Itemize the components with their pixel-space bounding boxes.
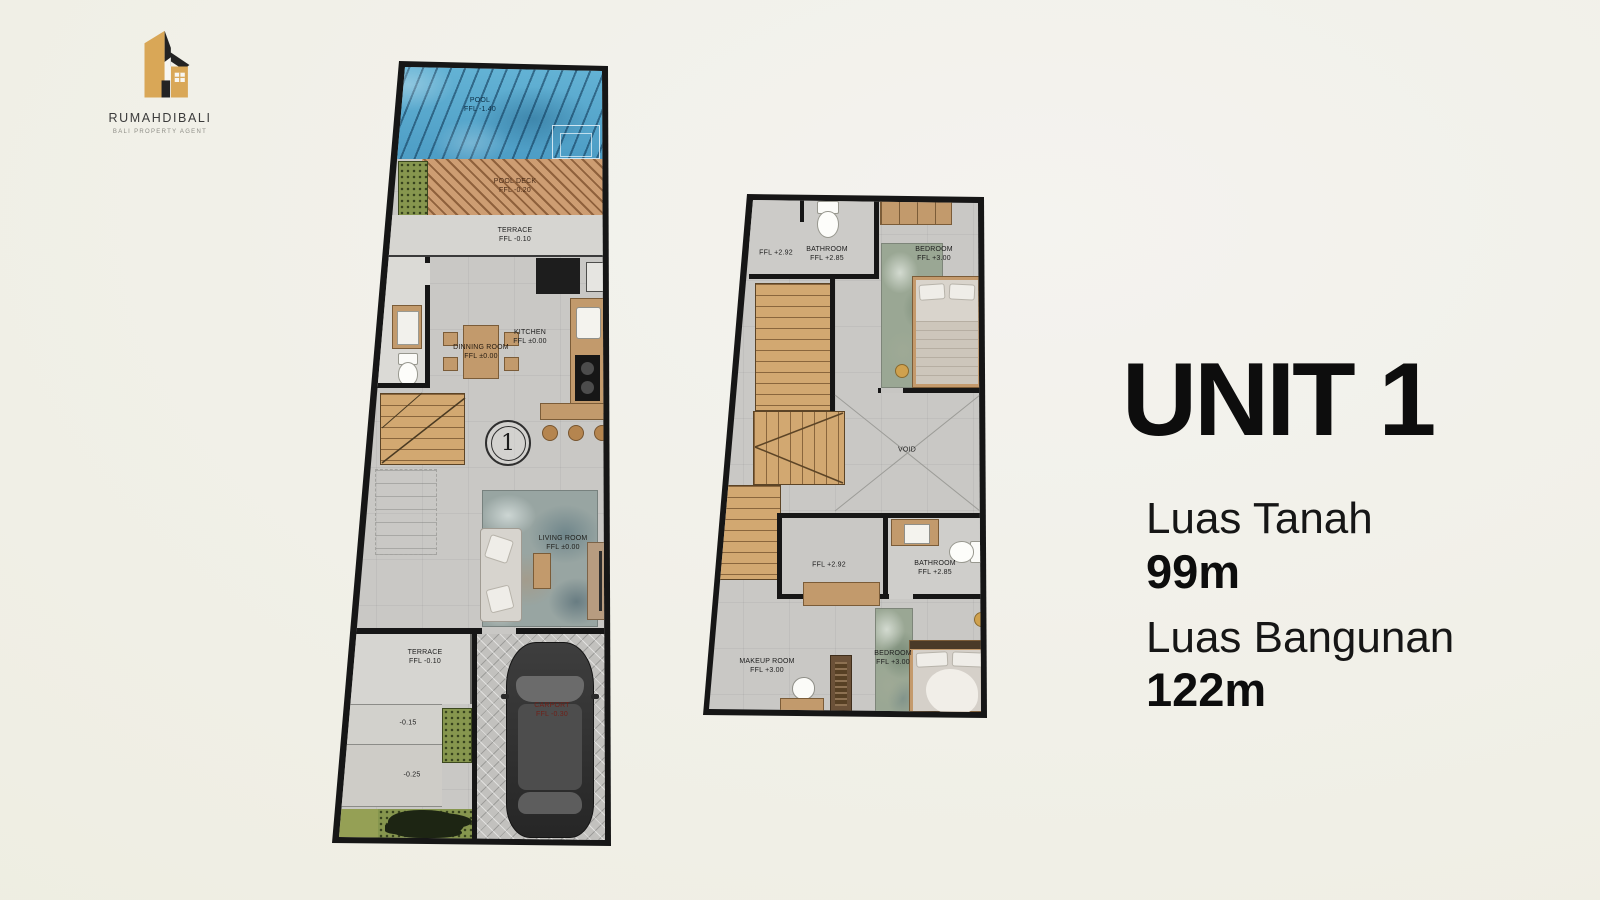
kitchen-counter [570, 298, 605, 414]
room-label-makeup: MAKEUP ROOMFFL +3.00 [739, 657, 794, 675]
terrace-bottom [335, 634, 472, 704]
room-label-bedroom-top: BEDROOMFFL +3.00 [915, 245, 953, 263]
makeup-dresser [830, 655, 852, 712]
bath-top-wall-v [874, 198, 879, 278]
land-area-value: 99m [1146, 545, 1454, 599]
toilet-icon [815, 201, 839, 237]
car-icon [506, 642, 594, 838]
step-label-1: -0.15 [400, 718, 417, 727]
makeup-desk [780, 698, 824, 712]
bathroom-door-gap [425, 263, 430, 285]
landing-mat [803, 582, 880, 606]
kitchen-island [540, 403, 606, 420]
step-label-2: -0.25 [404, 770, 421, 779]
upper-floor-plan: FFL +2.92 BATHROOMFFL +2.85 BEDROOMFFL +… [697, 188, 992, 721]
toilet-icon [396, 353, 418, 385]
carport-wall [472, 634, 477, 840]
room-label-bathroom-top: BATHROOMFFL +2.85 [806, 245, 848, 263]
room-label-terrace-bottom: TERRACEFFL -0.10 [408, 648, 443, 666]
ground-floor-interior: POOLFFL -1.40 POOL DECKFFL -0.20 TERRACE… [330, 53, 612, 850]
bed-icon [912, 276, 982, 388]
stairs-dashed-lower [375, 469, 437, 555]
house-logo-icon [129, 26, 191, 100]
bedroom-top-door-gap [881, 388, 903, 393]
brand-logo: RUMAHDIBALI BALI PROPERTY AGENT [100, 26, 220, 135]
kitchen-sink-icon [576, 307, 601, 339]
stairs-lower-flight [715, 485, 781, 580]
unit-info: UNIT 1 Luas Tanah 99m Luas Bangunan 122m [1122, 348, 1454, 717]
stairs-ground [380, 393, 465, 465]
sofa-icon [480, 528, 522, 622]
bathroom-top [749, 198, 878, 278]
room-label-carport: CARPORTFFL -0.30 [534, 701, 570, 719]
label-landing-top: FFL +2.92 [759, 248, 793, 257]
side-table-icon [895, 364, 909, 378]
cooktop-icon [575, 355, 600, 401]
room-label-bedroom-bottom: BEDROOMFFL +3.00 [874, 649, 912, 667]
stairs-landing-chevron [753, 411, 845, 485]
sink-vanity-icon [392, 305, 422, 349]
room-label-kitchen: KITCHENFFL ±0.00 [513, 328, 546, 346]
room-label-pool: POOLFFL -1.40 [464, 96, 496, 114]
bar-stool-icon [542, 425, 558, 441]
closet-box [536, 258, 580, 294]
tv-console [587, 542, 606, 620]
bathroom-wall-h [358, 383, 430, 388]
garden-front-plain [333, 809, 378, 840]
bath-top-stubwall [800, 198, 804, 222]
room-label-pool-deck: POOL DECKFFL -0.20 [494, 177, 536, 195]
bar-stool-icon [568, 425, 584, 441]
room-label-terrace-top: TERRACEFFL -0.10 [498, 226, 533, 244]
garden-patch [442, 708, 472, 763]
building-area-label: Luas Bangunan [1146, 613, 1454, 664]
wardrobe-top [880, 201, 952, 225]
mid-door-gap [889, 594, 913, 599]
step-0-25 [335, 745, 442, 807]
room-label-living: LIVING ROOMFFL ±0.00 [539, 534, 588, 552]
pool-steps-inner [560, 133, 592, 157]
upper-floor-interior: FFL +2.92 BATHROOMFFL +2.85 BEDROOMFFL +… [697, 188, 992, 721]
vanity-mid [891, 519, 939, 546]
bed-icon [909, 640, 990, 712]
room-label-bathroom-mid: BATHROOMFFL +2.85 [914, 559, 956, 577]
room-label-dinning: DINNING ROOMFFL ±0.00 [453, 343, 509, 361]
makeup-chair-icon [792, 677, 815, 700]
unit-title: UNIT 1 [1122, 348, 1454, 452]
building-area-value: 122m [1146, 663, 1454, 717]
coffee-table [533, 553, 551, 589]
step-0-15 [335, 704, 442, 745]
stairs-upper-flight [755, 283, 832, 411]
label-void: VOID [898, 445, 916, 454]
bath-top-wall-h [749, 274, 879, 279]
side-table-icon [974, 612, 989, 627]
brand-name: RUMAHDIBALI [100, 111, 220, 125]
land-area-label: Luas Tanah [1146, 494, 1454, 545]
flyer-canvas: RUMAHDIBALI BALI PROPERTY AGENT POOLFFL … [0, 0, 1600, 900]
stair-divider-wall [830, 278, 835, 420]
unit-number-marker: 1 [485, 420, 531, 466]
bar-stool-icon [594, 425, 610, 441]
tree-icon [388, 810, 464, 838]
brand-tagline: BALI PROPERTY AGENT [100, 129, 220, 135]
storage-outline [586, 262, 604, 292]
ground-floor-plan: POOLFFL -1.40 POOL DECKFFL -0.20 TERRACE… [330, 53, 612, 850]
label-landing-mid: FFL +2.92 [812, 560, 846, 569]
